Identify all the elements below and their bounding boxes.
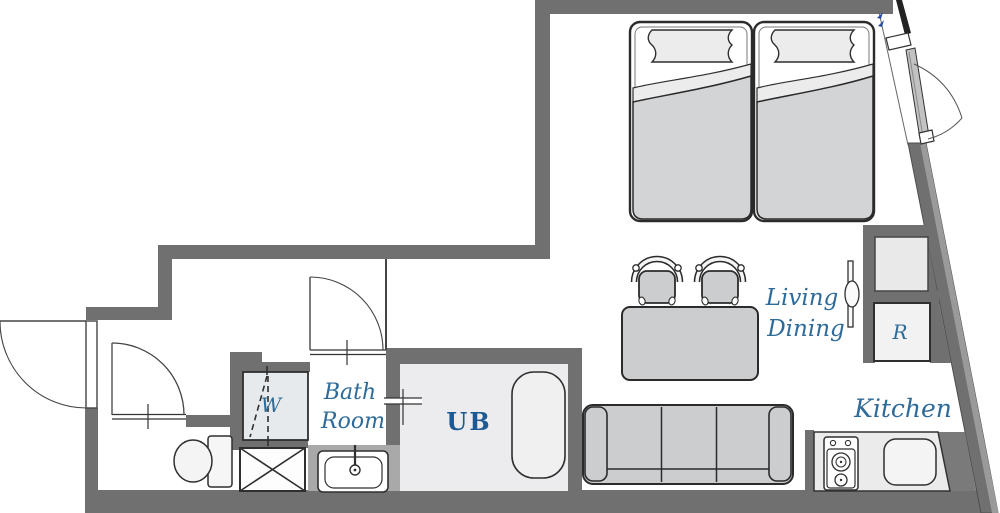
wall-unit-top bbox=[863, 225, 932, 237]
label-bath-room-2: Room bbox=[320, 409, 385, 434]
wall-bottom bbox=[85, 490, 998, 513]
door-panel-dark bbox=[896, 0, 911, 35]
tv-panel bbox=[845, 261, 859, 327]
sofa bbox=[583, 405, 793, 484]
dining-set bbox=[622, 259, 758, 380]
bathroom-door bbox=[310, 259, 386, 350]
wall-kitchen-stub bbox=[805, 430, 814, 491]
label-unit-bath: UB bbox=[446, 407, 491, 436]
wall-bedroom-left bbox=[535, 0, 550, 259]
pillow bbox=[771, 30, 854, 62]
wall-unit-mid bbox=[863, 291, 939, 303]
wall-laundry-top-a bbox=[230, 352, 262, 372]
balcony-door bbox=[877, 0, 962, 145]
floor-plan: Bath Room UB W R Living Dining Kitchen bbox=[0, 0, 1000, 513]
label-refrigerator: R bbox=[891, 320, 907, 344]
bed-right bbox=[754, 22, 874, 221]
wall-strip-top bbox=[158, 245, 550, 259]
counter-top-box bbox=[875, 237, 928, 291]
stove bbox=[824, 437, 858, 490]
wall-laundry-mid bbox=[240, 440, 308, 448]
label-living-2: Dining bbox=[766, 316, 845, 342]
dining-table bbox=[622, 307, 758, 380]
floor-plan-page: Bath Room UB W R Living Dining Kitchen bbox=[0, 0, 1000, 513]
wall-ub-top bbox=[386, 348, 582, 364]
toilet bbox=[174, 436, 232, 487]
label-living-1: Living bbox=[765, 285, 839, 311]
label-washer: W bbox=[261, 393, 283, 417]
wall-ub-right bbox=[568, 348, 582, 491]
wall-laundry-top-b bbox=[262, 362, 310, 372]
entrance-door-arc bbox=[0, 321, 86, 408]
laundry-space bbox=[240, 366, 308, 491]
chair-left bbox=[633, 259, 681, 306]
kitchen-area bbox=[814, 432, 950, 491]
toilet-doorway bbox=[112, 404, 186, 429]
vanity-sink bbox=[318, 445, 388, 492]
wall-top bbox=[535, 0, 893, 14]
bathtub bbox=[512, 372, 565, 478]
label-kitchen: Kitchen bbox=[853, 394, 952, 423]
kitchen-sink bbox=[884, 439, 936, 485]
chair-right bbox=[696, 259, 744, 306]
bath-threshold bbox=[310, 340, 386, 365]
bathroom-door-arc bbox=[310, 277, 383, 350]
entrance-door bbox=[0, 321, 97, 408]
door-panel-glass bbox=[906, 48, 929, 139]
pillow bbox=[648, 30, 732, 62]
door-track bbox=[879, 12, 908, 145]
stove-knob bbox=[845, 440, 850, 445]
wall-ub-left bbox=[386, 364, 400, 448]
door-hinge-bottom bbox=[919, 130, 934, 144]
entrance-door-leaf bbox=[86, 321, 97, 408]
stove-knob bbox=[830, 440, 835, 445]
bed-left bbox=[630, 22, 752, 221]
label-bath-room-1: Bath bbox=[323, 380, 376, 405]
door-hinge-top bbox=[886, 33, 911, 50]
toilet-bowl bbox=[174, 440, 212, 482]
wall-entry-top bbox=[86, 307, 172, 320]
shaft-box bbox=[240, 448, 305, 491]
